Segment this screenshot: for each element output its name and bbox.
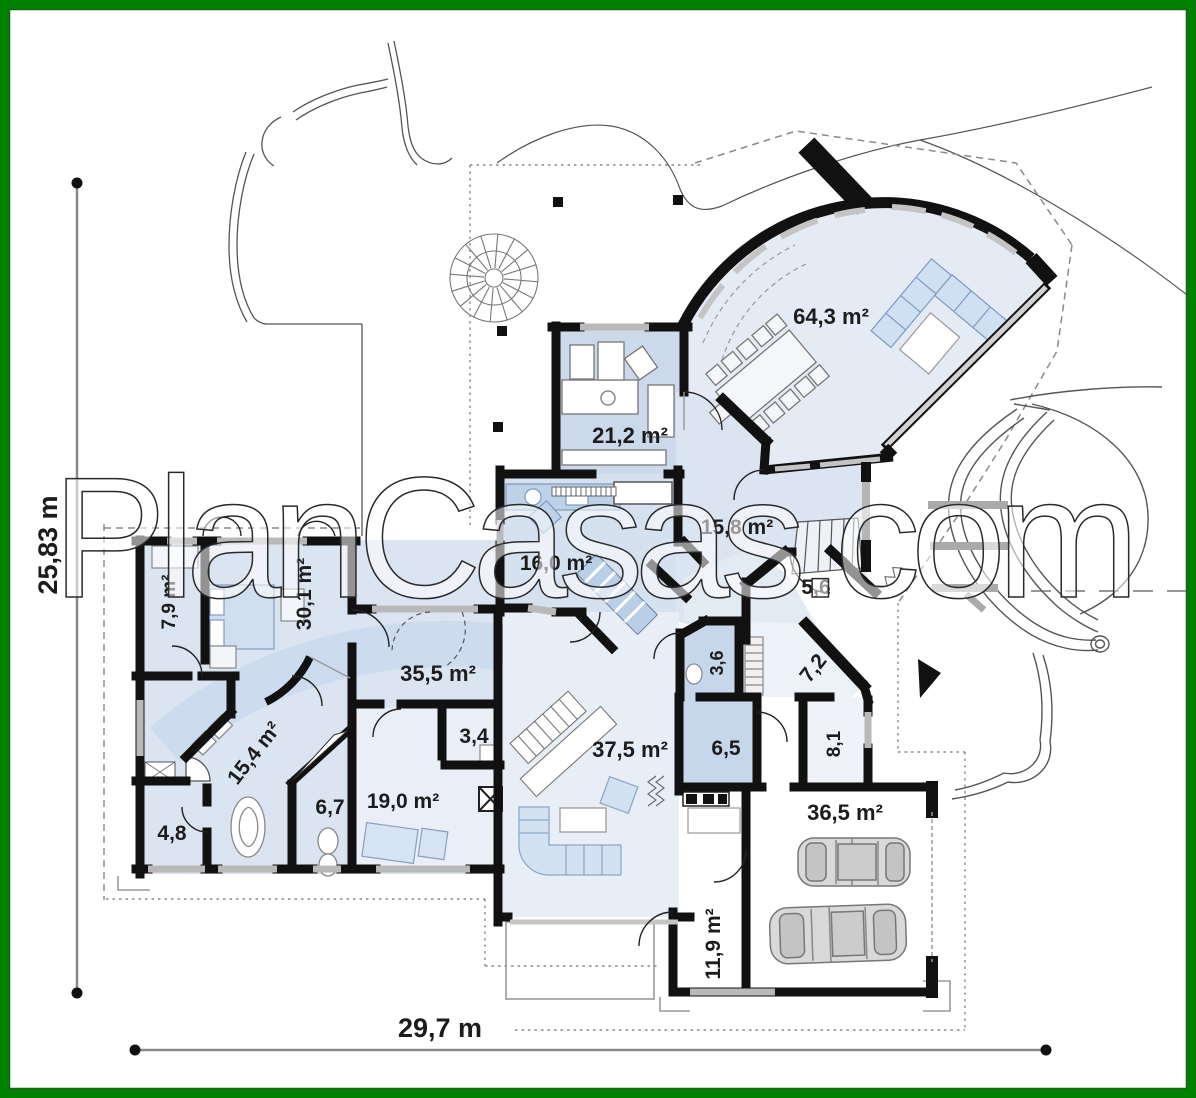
svg-text:6,5: 6,5 [711, 737, 741, 760]
svg-text:64,3 m²: 64,3 m² [793, 304, 869, 329]
svg-text:36,5 m²: 36,5 m² [807, 800, 883, 825]
svg-text:8,1: 8,1 [824, 730, 845, 757]
svg-text:6,7: 6,7 [315, 796, 344, 819]
svg-text:11,9 m²: 11,9 m² [702, 908, 725, 979]
svg-text:3,6: 3,6 [707, 650, 727, 675]
svg-text:3,4: 3,4 [459, 725, 489, 748]
svg-text:29,7 m: 29,7 m [398, 1013, 482, 1043]
svg-text:35,5 m²: 35,5 m² [400, 661, 476, 686]
svg-text:37,5 m²: 37,5 m² [592, 737, 668, 762]
svg-text:PlanCasas.com: PlanCasas.com [52, 442, 1140, 634]
svg-text:19,0 m²: 19,0 m² [367, 790, 439, 813]
svg-text:4,8: 4,8 [157, 822, 187, 845]
